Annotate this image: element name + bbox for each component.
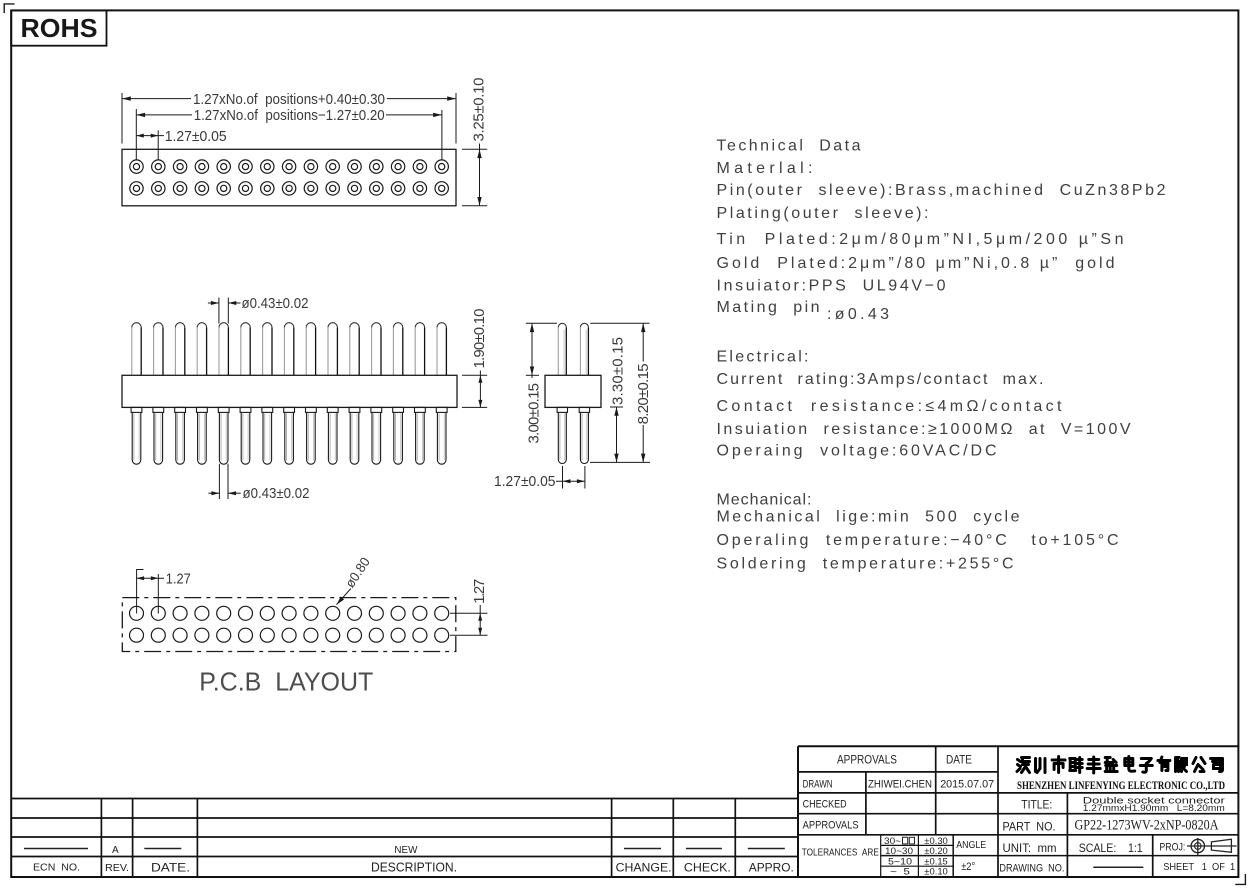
svg-text:1.27xNo.of positions+0.40±0.3: 1.27xNo.of positions+0.40±0.30 — [193, 91, 385, 108]
svg-text:ø0.43±0.02: ø0.43±0.02 — [243, 485, 310, 502]
svg-text:1.27mmxH1.90mm L=8.20mm: 1.27mmxH1.90mm L=8.20mm — [1083, 803, 1225, 814]
svg-text:10~30: 10~30 — [885, 846, 913, 857]
svg-text:~ 5: ~ 5 — [890, 867, 910, 878]
svg-text:DRAWING NO.: DRAWING NO. — [999, 862, 1064, 874]
svg-text:Mechanical:: Mechanical: — [717, 492, 812, 509]
svg-text:REV.: REV. — [105, 862, 129, 874]
svg-text:1.27xNo.of positions−1.27±0.2: 1.27xNo.of positions−1.27±0.20 — [194, 107, 385, 124]
svg-text:SCALE: 1:1: SCALE: 1:1 — [1079, 843, 1143, 855]
svg-text:Operaing voltage:60VAC/DC: Operaing voltage:60VAC/DC — [717, 443, 997, 460]
svg-text:DATE: DATE — [946, 755, 972, 767]
svg-text:1.27±0.05: 1.27±0.05 — [494, 473, 556, 490]
svg-text:1.27: 1.27 — [471, 579, 488, 604]
svg-text:Operaling temperature:−40°C: Operaling temperature:−40°C to+105°C — [717, 532, 1119, 549]
svg-text:SHENZHEN LINFENYING ELECTRONIC: SHENZHEN LINFENYING ELECTRONIC CO.,LTD — [1017, 780, 1225, 792]
svg-text:CHECKED: CHECKED — [803, 799, 847, 811]
svg-text:1.90±0.10: 1.90±0.10 — [471, 309, 488, 369]
svg-text:Electrical:: Electrical: — [717, 349, 809, 366]
svg-text:NEW: NEW — [394, 844, 417, 856]
svg-text:TOLERANCES ARE: TOLERANCES ARE — [802, 848, 879, 859]
svg-text:Plating(outer sleeve):: Plating(outer sleeve): — [717, 205, 929, 222]
svg-text:CHANGE.: CHANGE. — [616, 861, 672, 875]
svg-text:PART NO.: PART NO. — [1003, 822, 1056, 834]
svg-text:1.27±0.05: 1.27±0.05 — [165, 128, 227, 145]
svg-text:2015.07.07: 2015.07.07 — [940, 778, 994, 790]
svg-text:3.25±0.10: 3.25±0.10 — [470, 78, 487, 142]
svg-text:PROJ:: PROJ: — [1159, 841, 1185, 853]
svg-text:±0.10: ±0.10 — [924, 867, 948, 878]
svg-text:CHECK.: CHECK. — [684, 861, 731, 875]
svg-text:APPRO.: APPRO. — [749, 861, 794, 875]
svg-text:ANGLE: ANGLE — [956, 840, 986, 851]
svg-text:Technical Data: Technical Data — [717, 137, 861, 154]
svg-text:APPROVALS: APPROVALS — [803, 820, 859, 832]
svg-text:ø0.43±0.02: ø0.43±0.02 — [242, 295, 309, 312]
svg-text:Mating pin: Mating pin — [717, 299, 820, 316]
svg-text:ROHS: ROHS — [21, 13, 98, 43]
svg-text:ZHIWEI.CHEN: ZHIWEI.CHEN — [868, 778, 932, 790]
svg-text:UNIT: mm: UNIT: mm — [1003, 843, 1057, 855]
svg-text:GP22-1273WV-2xNP-0820A: GP22-1273WV-2xNP-0820A — [1075, 817, 1219, 833]
svg-text:DESCRIPTION.: DESCRIPTION. — [371, 861, 457, 875]
svg-text:APPROVALS: APPROVALS — [837, 755, 897, 767]
svg-text:SHEET 1 OF 1: SHEET 1 OF 1 — [1163, 861, 1235, 873]
svg-text:P.C.B LAYOUT: P.C.B LAYOUT — [199, 667, 373, 697]
svg-text:Mechanical lige:min 500 cyc: Mechanical lige:min 500 cycle — [717, 509, 1020, 526]
svg-text:±2°: ±2° — [961, 861, 975, 873]
svg-text:DRAWN: DRAWN — [803, 778, 833, 790]
svg-text:A: A — [112, 845, 119, 856]
svg-text:8.20±0.15: 8.20±0.15 — [635, 363, 652, 424]
svg-text:Insuiator:PPS UL94V−0: Insuiator:PPS UL94V−0 — [717, 278, 946, 295]
svg-text:±0.20: ±0.20 — [924, 846, 948, 857]
svg-text:3.00±0.15: 3.00±0.15 — [526, 383, 543, 444]
svg-text:TITLE:: TITLE: — [1021, 800, 1052, 812]
svg-text:DATE.: DATE. — [151, 861, 190, 875]
svg-text:1.27: 1.27 — [166, 570, 191, 587]
svg-text:ECN NO.: ECN NO. — [33, 863, 80, 874]
svg-text:3.30±0.15: 3.30±0.15 — [609, 337, 626, 405]
svg-text:Soldering temperature:+255°C: Soldering temperature:+255°C — [717, 556, 1014, 573]
